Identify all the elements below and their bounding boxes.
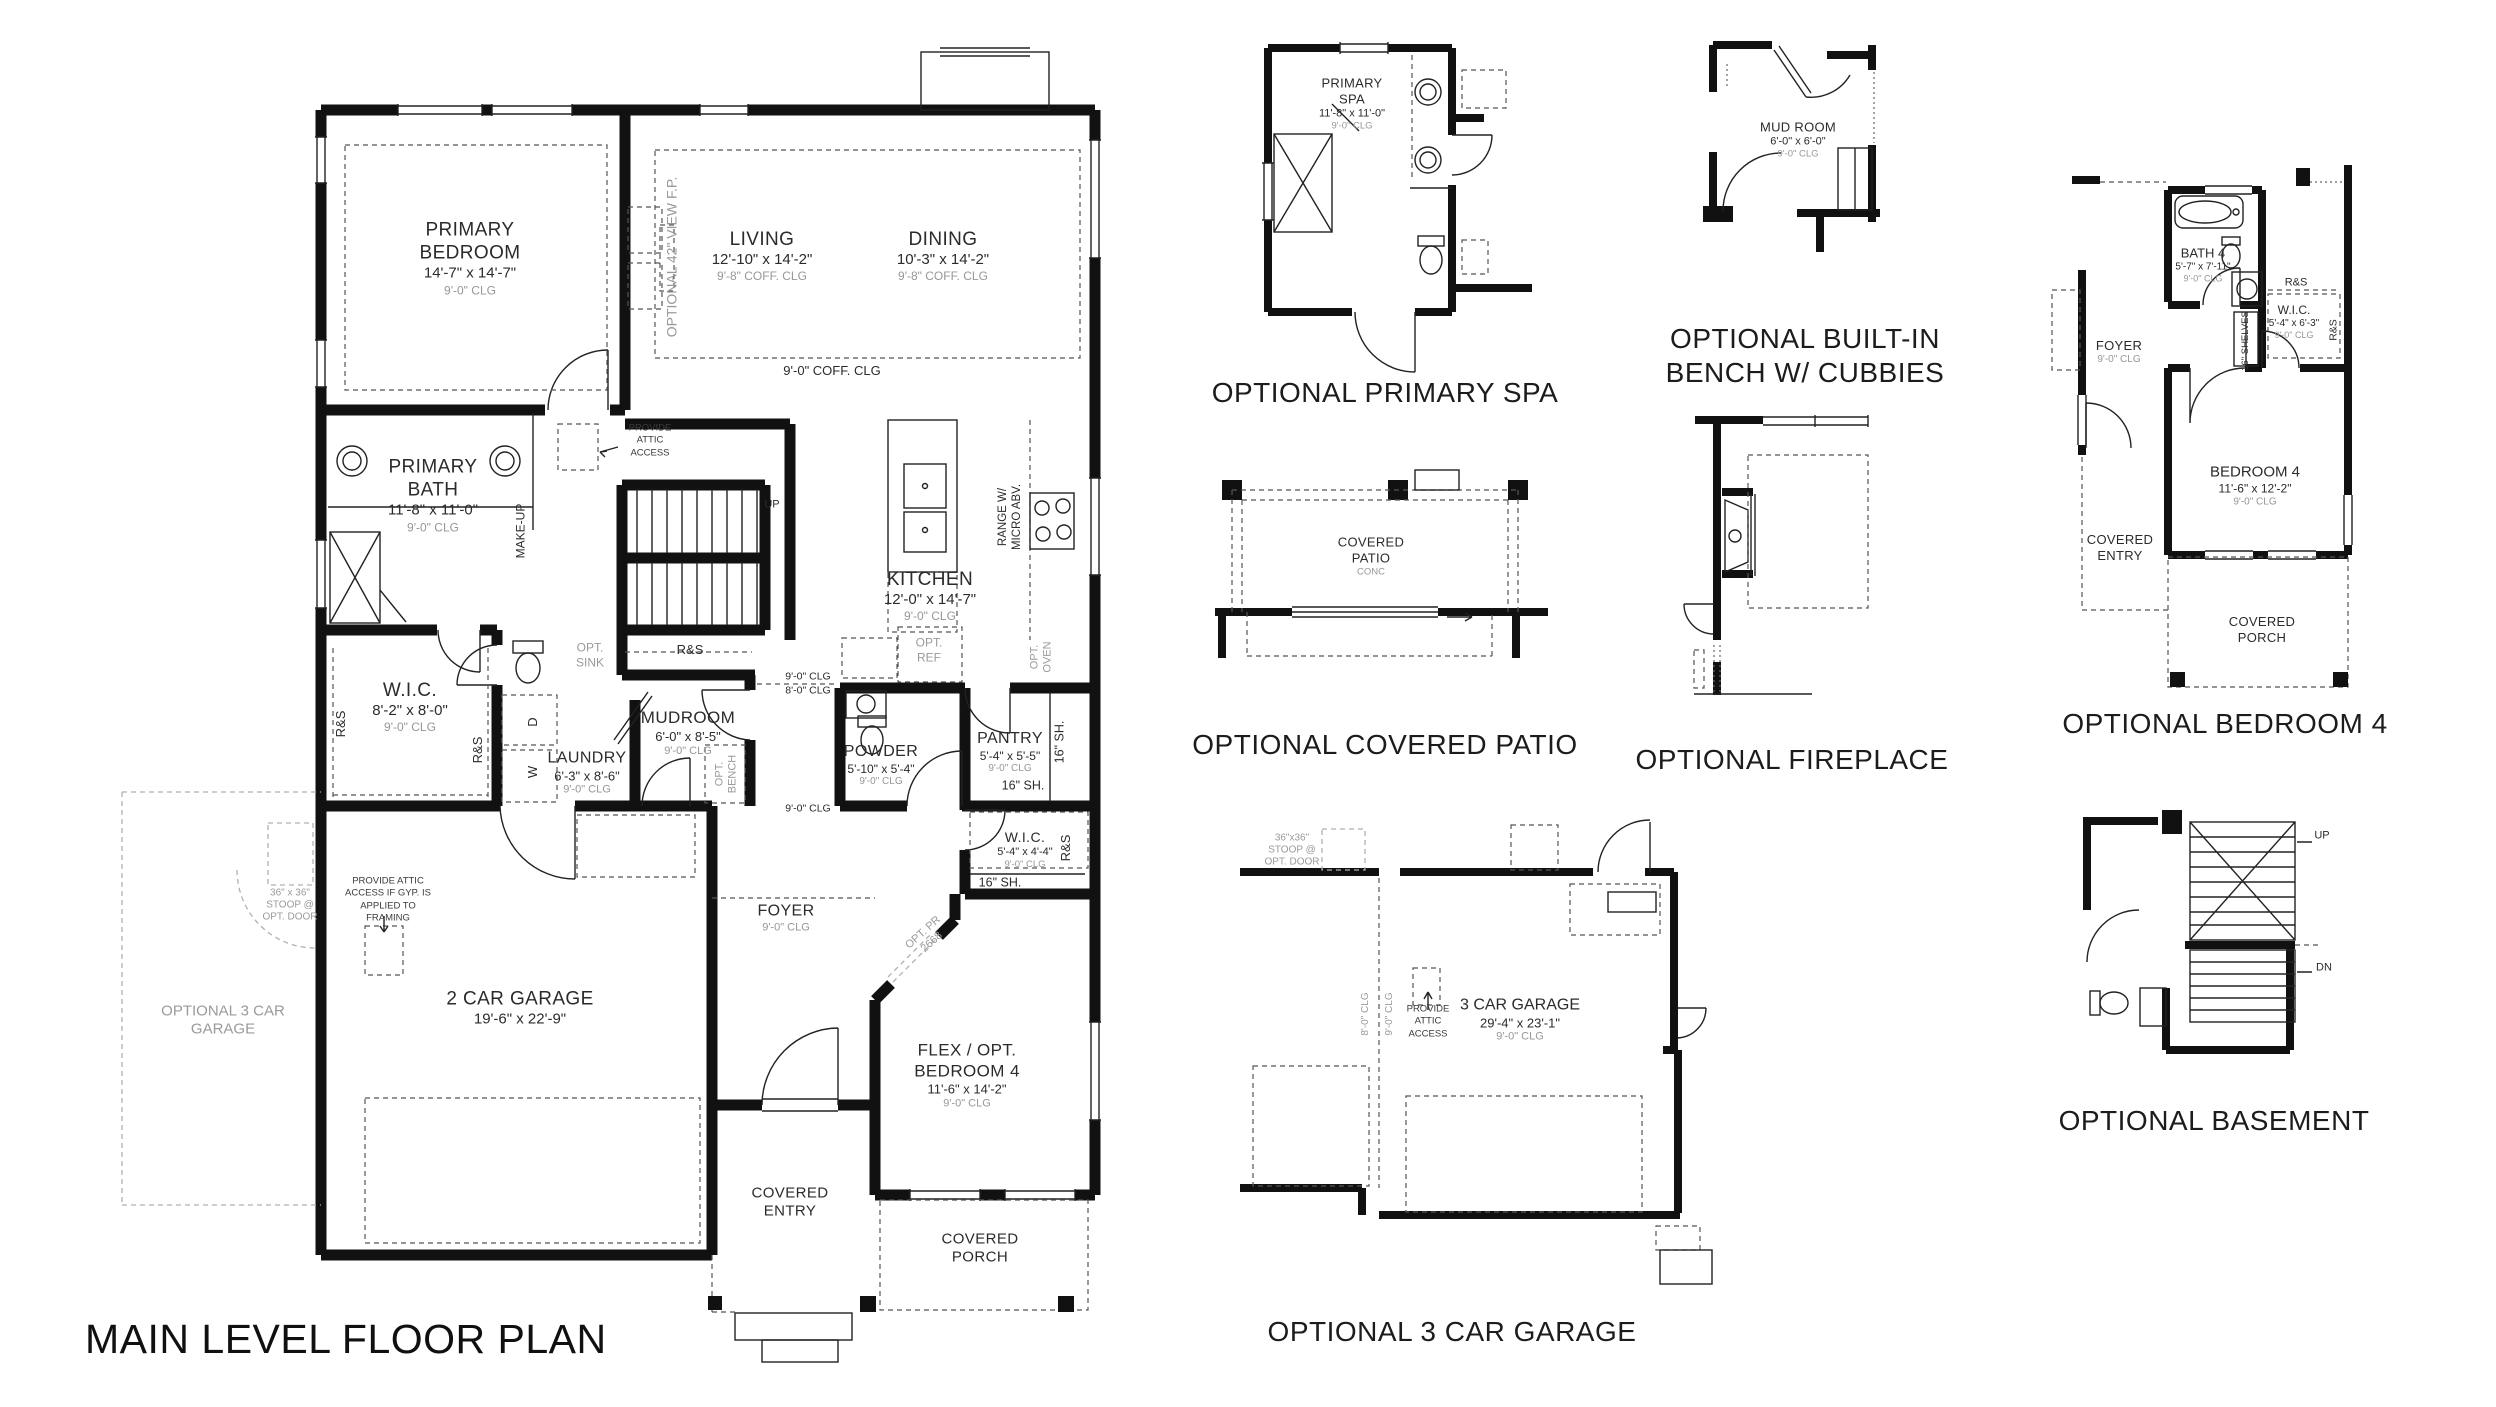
note-opt-bench: OPT. BENCH xyxy=(714,750,741,798)
room-label-wic-primary: W.I.C. 8'-2" x 8'-0" 9'-0" CLG xyxy=(372,679,448,735)
room-label-bath4: BATH 4 5'-7" x 7'-11" 9'-0" CLG xyxy=(2175,245,2230,284)
caption-optional-primary-spa: OPTIONAL PRIMARY SPA xyxy=(1212,376,1559,410)
note-make-up: MAKE-UP xyxy=(514,504,529,559)
note-dryer: D xyxy=(525,717,541,726)
room-label-covered-patio: COVERED PATIO CONC xyxy=(1329,534,1414,577)
room-label-garage: 2 CAR GARAGE 19'-6" x 22'-9" xyxy=(446,987,593,1028)
room-label-wic4: W.I.C. 5'-4" x 6'-3" 9'-0" CLG xyxy=(2269,303,2319,341)
note-16sh-pantry-h: 16" SH. xyxy=(1002,778,1045,793)
note-clg9-break2: 9'-0" CLG xyxy=(785,803,830,816)
room-label-powder: POWDER 5'-10" x 5'-4" 9'-0" CLG xyxy=(844,742,918,788)
note-optional-3car: OPTIONAL 3 CAR GARAGE xyxy=(156,1003,291,1040)
room-label-covered-porch: COVERED PORCH xyxy=(933,1231,1028,1268)
note-clg8-break1: 8'-0" CLG xyxy=(785,685,830,698)
caption-optional-fireplace: OPTIONAL FIREPLACE xyxy=(1636,743,1949,777)
note-16-shelves: 16" SHELVES xyxy=(2240,311,2252,371)
note-dn-basement: DN xyxy=(2316,961,2332,974)
fireplace-walls xyxy=(1695,420,1763,695)
note-16sh-pantry-v: 16" SH. xyxy=(1052,721,1067,764)
room-label-bedroom4: BEDROOM 4 11'-6" x 12'-2" 9'-0" CLG xyxy=(2210,463,2300,508)
note-stoop: 36" x 36" STOOP @ OPT. DOOR xyxy=(257,888,323,925)
room-label-foyer4: FOYER 9'-0" CLG xyxy=(2096,338,2142,366)
note-provide-attic: PROVIDE ATTIC ACCESS xyxy=(619,422,681,459)
note-clg8-g3: 8'-0" CLG xyxy=(1360,992,1372,1035)
note-rs-4: R&S xyxy=(1058,835,1074,862)
note-rs-3: R&S xyxy=(470,737,486,764)
note-stoop-g3: 36"x36" STOOP @ OPT. DOOR xyxy=(1261,833,1323,870)
caption-optional-3car-garage: OPTIONAL 3 CAR GARAGE xyxy=(1268,1315,1637,1349)
room-label-primary-bedroom: PRIMARY BEDROOM 14'-7" x 14'-7" 9'-0" CL… xyxy=(403,218,538,297)
room-label-wic-flex: W.I.C. 5'-4" x 4'-4" 9'-0" CLG xyxy=(997,829,1052,871)
room-label-dining: DINING 10'-3" x 14'-2" 9'-8" COFF. CLG xyxy=(897,228,989,284)
sheet-title: MAIN LEVEL FLOOR PLAN xyxy=(85,1316,607,1363)
room-label-pantry: PANTRY 5'-4" x 5'-5" 9'-0" CLG xyxy=(977,729,1043,775)
room-label-flex: FLEX / OPT. BEDROOM 4 11'-6" x 14'-2" 9'… xyxy=(892,1041,1042,1112)
basement-walls xyxy=(2083,821,2295,1050)
caption-optional-bench: OPTIONAL BUILT-IN BENCH W/ CUBBIES xyxy=(1650,322,1960,390)
note-opt-ref: OPT. REF xyxy=(909,635,949,664)
note-up: UP xyxy=(764,498,779,511)
note-washer: W xyxy=(525,766,541,778)
note-rs-bed4-h: R&S xyxy=(2285,276,2308,289)
room-label-covered-entry: COVERED ENTRY xyxy=(743,1185,838,1222)
note-rs-bed4-v: R&S xyxy=(2328,319,2341,341)
caption-optional-bedroom4: OPTIONAL BEDROOM 4 xyxy=(2062,707,2387,741)
caption-optional-covered-patio: OPTIONAL COVERED PATIO xyxy=(1192,728,1577,762)
room-label-primary-spa: PRIMARY SPA 11'-8" x 11'-0" 9'-0" CLG xyxy=(1317,76,1387,133)
room-label-mud-room: MUD ROOM 6'-0" x 6'-0" 9'-0" CLG xyxy=(1760,120,1836,161)
note-rs-1: R&S xyxy=(677,642,704,658)
note-clg9-g3: 9'-0" CLG xyxy=(1384,992,1396,1035)
caption-optional-basement: OPTIONAL BASEMENT xyxy=(2059,1104,2370,1138)
patio-walls xyxy=(1215,612,1548,658)
floor-plan-sheet: PRIMARY BEDROOM 14'-7" x 14'-7" 9'-0" CL… xyxy=(0,0,2496,1407)
spa-walls xyxy=(1268,48,1532,312)
note-up-basement: UP xyxy=(2314,829,2329,842)
note-attic-g3: PROVIDE ATTIC ACCESS xyxy=(1397,1003,1459,1040)
note-range-micro: RANGE W/ MICRO ABV. xyxy=(996,478,1024,556)
note-opt-oven: OPT. OVEN xyxy=(1029,637,1056,677)
note-16sh-wic: 16" SH. xyxy=(979,875,1022,890)
room-label-primary-bath: PRIMARY BATH 11'-8" x 11'-0" 9'-0" CLG xyxy=(376,455,491,534)
bay-bump xyxy=(921,52,1049,110)
room-label-covered-entry4: COVERED ENTRY xyxy=(2080,532,2160,564)
note-clg9-break1: 9'-0" CLG xyxy=(785,671,830,684)
note-coff-clg: 9'-0" COFF. CLG xyxy=(783,363,880,379)
room-label-kitchen: KITCHEN 12'-0" x 14'-7" 9'-0" CLG xyxy=(884,568,976,624)
room-label-laundry: LAUNDRY 6'-3" x 8'-6" 9'-0" CLG xyxy=(548,749,627,798)
room-label-foyer: FOYER 9'-0" CLG xyxy=(757,902,814,935)
room-label-3car-garage: 3 CAR GARAGE 29'-4" x 23'-1" 9'-0" CLG xyxy=(1460,996,1580,1045)
note-attic-gyp: PROVIDE ATTIC ACCESS IF GYP. IS APPLIED … xyxy=(342,875,434,924)
note-optional-42-view-fp: OPTIONAL 42" VIEW F.P. xyxy=(663,177,680,338)
note-opt-sink: OPT. SINK xyxy=(570,640,610,669)
room-label-living: LIVING 12'-10" x 14'-2" 9'-8" COFF. CLG xyxy=(712,228,813,284)
note-rs-2: R&S xyxy=(333,711,349,738)
room-label-covered-porch4: COVERED PORCH xyxy=(2222,614,2302,646)
